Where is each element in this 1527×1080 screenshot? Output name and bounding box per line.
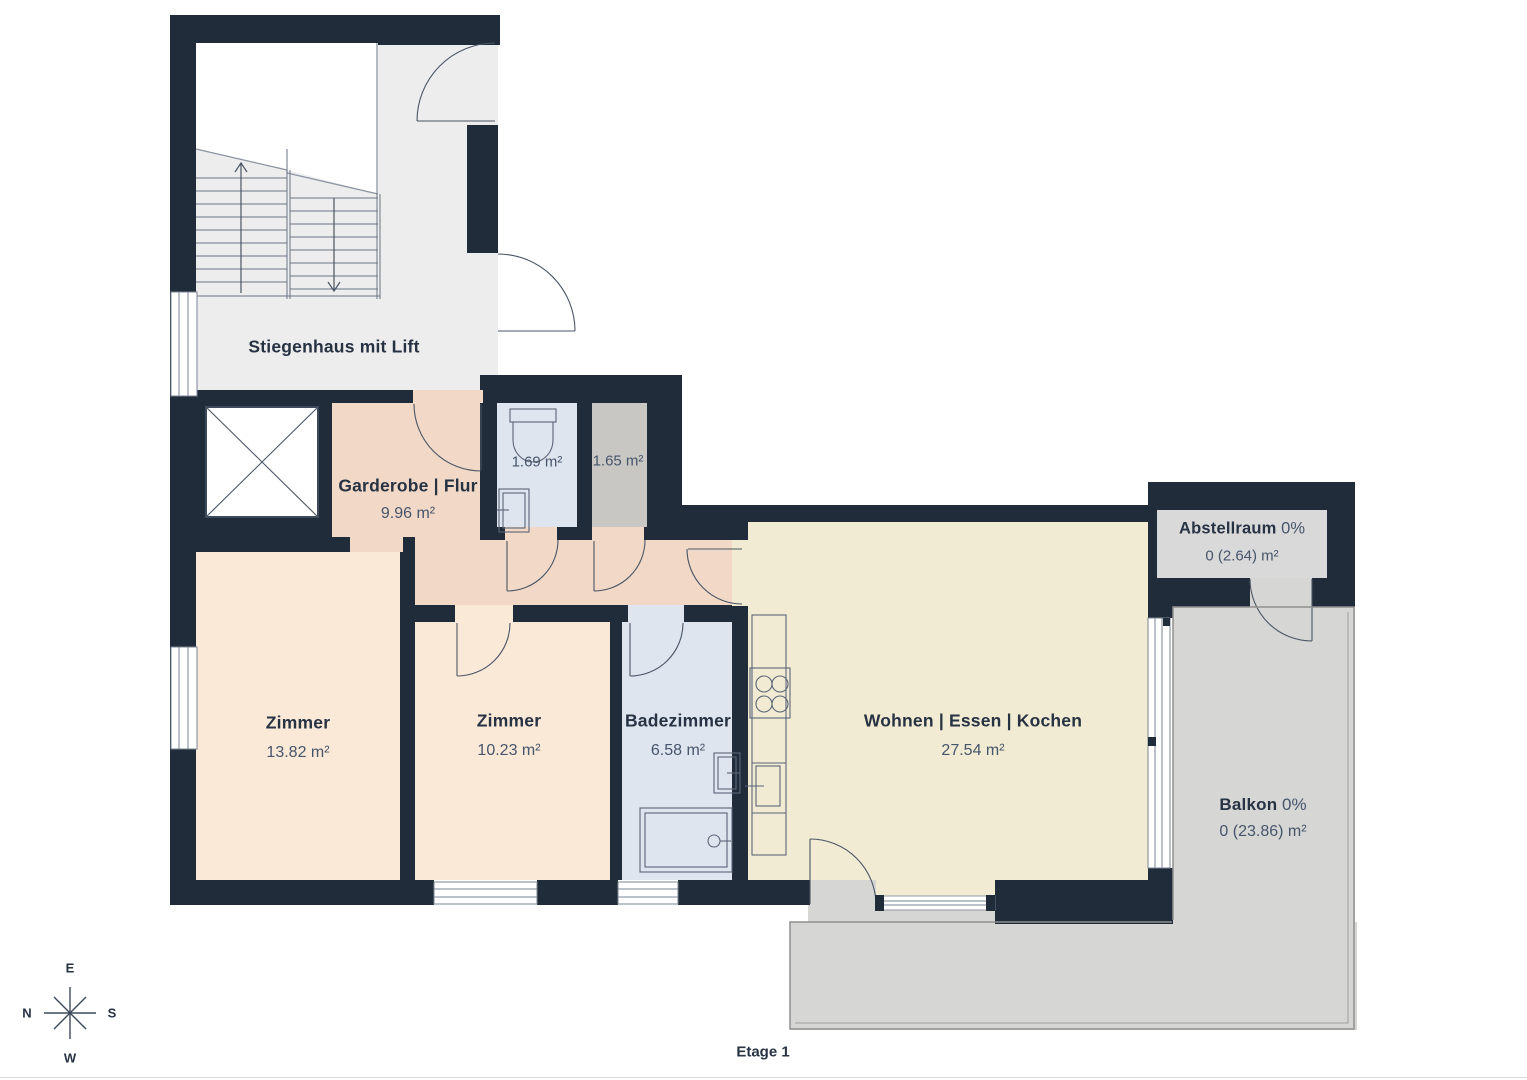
door-opening (732, 540, 748, 606)
room-area-zimmer1: 13.82 m² (266, 744, 329, 762)
floor-title: Etage 1 (736, 1044, 789, 1061)
room-living-floor (748, 522, 1148, 880)
wall-segment (467, 125, 498, 253)
room-area-wohnen: 27.54 m² (941, 742, 1004, 760)
room-hall-floor (415, 540, 732, 605)
wall-segment (577, 403, 592, 540)
compass-label-top: E (66, 961, 75, 976)
room-label-garderobe: Garderobe | Flur (338, 476, 477, 497)
door-opening (1250, 578, 1312, 607)
wall-segment (678, 880, 810, 905)
wall-segment (1148, 590, 1173, 618)
door-opening (505, 527, 557, 540)
abstellraum-percent: 0% (1281, 520, 1305, 538)
wall-segment (537, 880, 618, 905)
wall-segment (170, 15, 196, 905)
room-label-abstellraum: Abstellraum 0% (1179, 520, 1305, 539)
wall-segment (660, 505, 1148, 522)
compass-label-right: S (108, 1006, 117, 1021)
compass-icon (44, 987, 96, 1039)
wall-segment (196, 403, 332, 522)
room-balcony-floor (808, 905, 995, 922)
room-living-floor (876, 880, 995, 898)
door-opening (413, 390, 483, 403)
balkon-name: Balkon (1219, 795, 1277, 814)
room-area-balkon: 0 (23.86) m² (1219, 823, 1306, 841)
door-opening (350, 537, 403, 552)
wall-segment (400, 537, 415, 880)
room-area-badezimmer: 6.58 m² (651, 742, 705, 760)
room-balcony-floor (790, 922, 1357, 1030)
door-opening (810, 880, 876, 905)
wall-segment (1148, 868, 1173, 924)
wall-segment (682, 522, 732, 540)
wall-segment (170, 880, 434, 905)
room-area-wc: 1.69 m² (512, 454, 563, 471)
door-opening (592, 527, 644, 540)
door-opening (628, 605, 684, 622)
room-balcony-floor (1173, 607, 1355, 922)
room-area-zimmer2: 10.23 m² (477, 742, 540, 760)
wall-segment (170, 522, 332, 552)
page-divider (0, 1077, 1527, 1078)
abstellraum-name: Abstellraum (1179, 520, 1277, 538)
room-label-zimmer2: Zimmer (477, 711, 541, 732)
compass-label-left: N (22, 1006, 31, 1021)
room-area-abstellraum: 0 (2.64) m² (1205, 548, 1278, 565)
compass-label-bottom: W (64, 1051, 76, 1066)
room-label-zimmer1: Zimmer (266, 713, 330, 734)
balkon-percent: 0% (1282, 795, 1307, 814)
wall-segment (170, 15, 500, 45)
wall-segment (995, 880, 1148, 924)
room-label-wohnen: Wohnen | Essen | Kochen (864, 711, 1082, 732)
room-area-small-storage: 1.65 m² (593, 453, 644, 470)
room-area-garderobe: 9.96 m² (381, 505, 435, 523)
room-label-badezimmer: Badezimmer (625, 711, 731, 732)
wall-segment (610, 622, 622, 880)
door-opening (455, 605, 513, 622)
room-label-stiegenhaus: Stiegenhaus mit Lift (248, 337, 419, 358)
room-label-balkon: Balkon 0% (1219, 795, 1306, 815)
floor-plan: Stiegenhaus mit Lift Garderobe | Flur 9.… (0, 0, 1527, 1080)
